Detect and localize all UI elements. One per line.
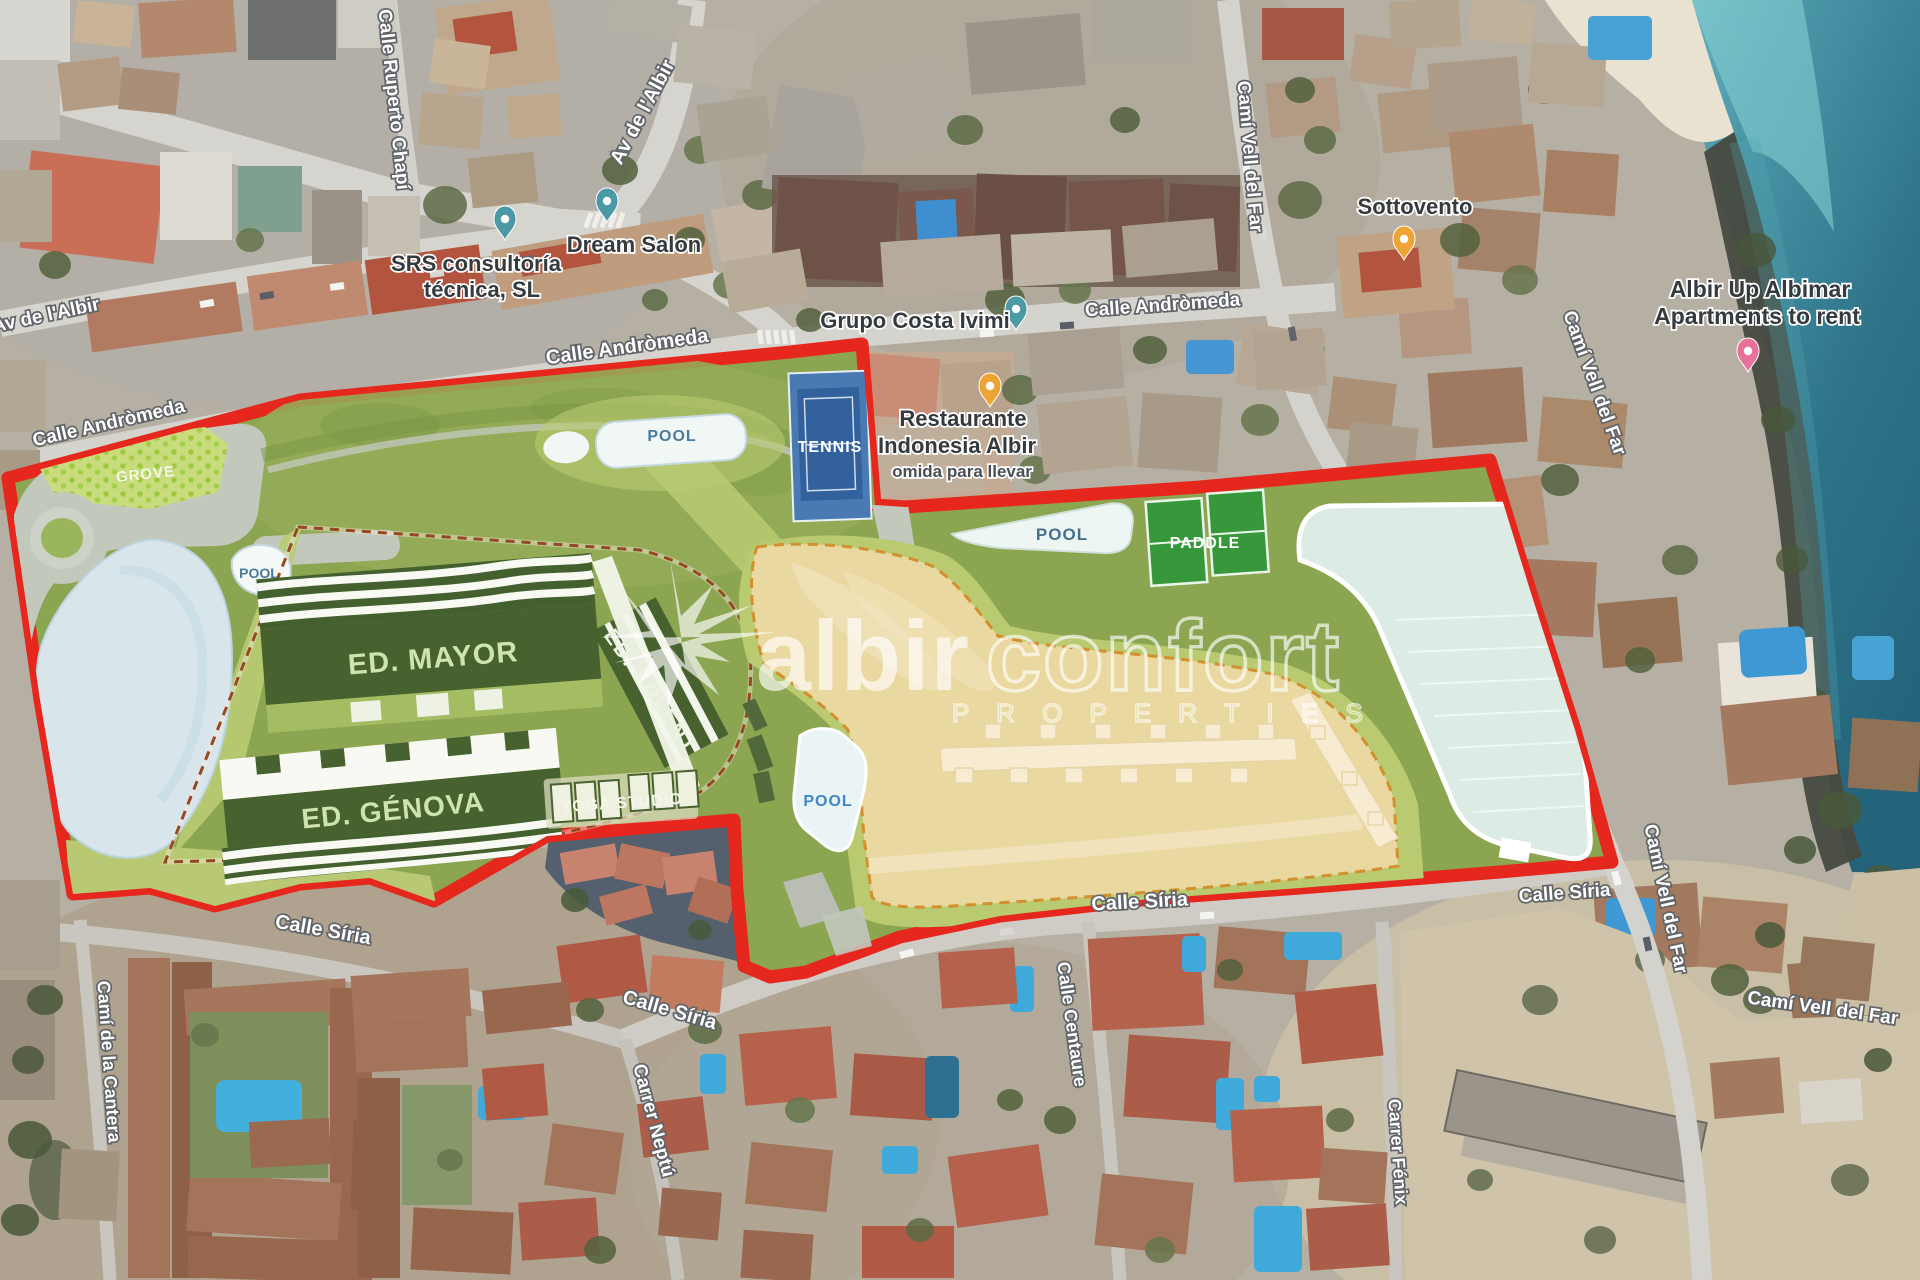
svg-text:albir: albir bbox=[756, 600, 970, 711]
svg-text:Grupo Costa Ivimi: Grupo Costa Ivimi bbox=[820, 308, 1009, 333]
svg-text:SRS consultoría: SRS consultoría bbox=[391, 251, 562, 276]
svg-text:Sottovento: Sottovento bbox=[1358, 194, 1473, 219]
svg-text:Dream Salon: Dream Salon bbox=[567, 232, 702, 257]
svg-text:POOL: POOL bbox=[1036, 525, 1088, 544]
svg-text:Apartments to rent: Apartments to rent bbox=[1654, 303, 1860, 329]
svg-text:omida para llevar: omida para llevar bbox=[892, 462, 1032, 481]
svg-text:Albir Up Albimar: Albir Up Albimar bbox=[1670, 276, 1851, 302]
svg-text:Indonesia Albir: Indonesia Albir bbox=[878, 433, 1037, 458]
svg-text:técnica, SL: técnica, SL bbox=[424, 277, 540, 302]
svg-text:confort: confort bbox=[986, 600, 1341, 711]
svg-text:Restaurante: Restaurante bbox=[899, 406, 1026, 431]
svg-text:POOL: POOL bbox=[647, 428, 696, 445]
svg-text:P R O P E R T I E S: P R O P E R T I E S bbox=[952, 698, 1373, 728]
svg-text:PADDLE: PADDLE bbox=[1170, 535, 1241, 552]
svg-text:TENNIS: TENNIS bbox=[798, 439, 863, 456]
svg-text:POOL: POOL bbox=[803, 793, 852, 810]
